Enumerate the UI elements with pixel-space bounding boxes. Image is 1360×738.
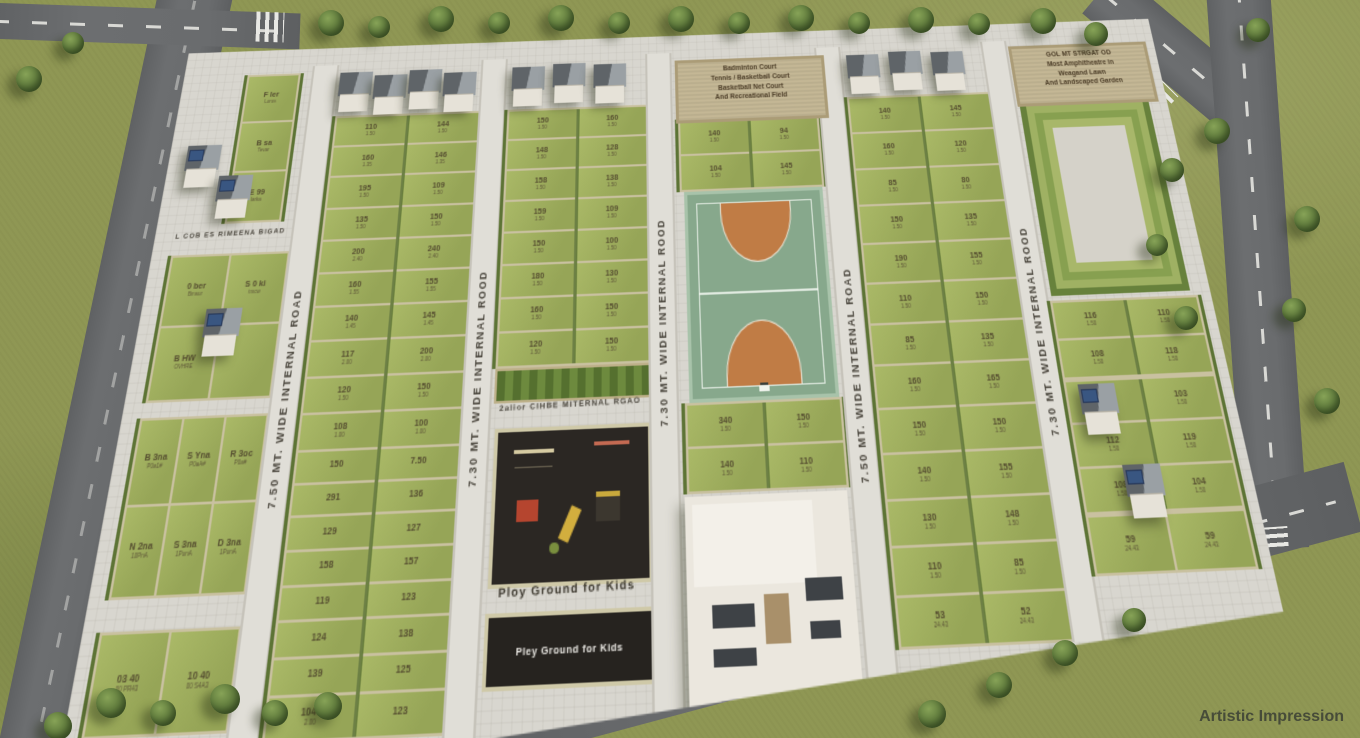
plot-area: 24.43 xyxy=(1205,542,1220,549)
plot: 1172.00 xyxy=(307,340,387,376)
plot: 1951.50 xyxy=(327,176,402,208)
plot: 1581.50 xyxy=(505,169,575,200)
plot-area: 1.50 xyxy=(536,186,546,191)
tree xyxy=(16,66,42,92)
plot-number: 340 xyxy=(718,416,732,425)
plot-area: 1.50 xyxy=(978,301,988,307)
tree xyxy=(1294,206,1320,232)
terraced-lawn xyxy=(1019,96,1190,296)
plot: 1401.50 xyxy=(883,452,967,499)
plot: 1601.55 xyxy=(315,272,393,306)
plot: 5324.43 xyxy=(897,595,986,647)
plot: 1101.50 xyxy=(334,116,407,146)
plot: 1461.35 xyxy=(404,143,477,174)
plot-area: 1.50 xyxy=(418,393,429,399)
plot: 139 xyxy=(270,657,359,696)
plot: 1501.50 xyxy=(508,109,576,139)
plot-number: S 3na xyxy=(173,540,197,551)
plot-area: 1.50 xyxy=(915,432,926,438)
plot-area: 1.50 xyxy=(608,123,617,128)
plot: 1401.50 xyxy=(688,446,767,492)
plot: 1501.50 xyxy=(765,399,843,443)
plot-area: 1.50 xyxy=(972,261,982,266)
plot: 1301.50 xyxy=(888,498,974,546)
plot: 5224.43 xyxy=(982,591,1072,643)
clubhouse-door xyxy=(764,593,792,644)
sports-court-sign: Badminton CourtTennis / Basketball Court… xyxy=(675,55,830,123)
plot-area: 1.50 xyxy=(983,342,994,348)
lawn-sign: GOL MT STRGAT ODMost Amphitheatre inWeag… xyxy=(1008,42,1159,107)
tree xyxy=(314,692,342,720)
tree xyxy=(262,700,288,726)
plot-area: 1.50 xyxy=(438,130,447,135)
plot: 123 xyxy=(355,690,445,737)
plot-number: 129 xyxy=(322,527,337,537)
house-wall xyxy=(183,168,216,188)
plot-area: 00 S4A3 xyxy=(186,683,209,691)
plot: 1081.50 xyxy=(1059,338,1138,377)
plot-number: 146 xyxy=(434,151,447,159)
plot: 1591.50 xyxy=(504,199,575,231)
plot: 1481.50 xyxy=(970,494,1057,542)
model-house xyxy=(212,175,253,219)
plot-number: 7.50 xyxy=(410,457,427,467)
plot: 1401.50 xyxy=(849,97,922,132)
road-label-outer-left: L COB ES RIMEENA BIGAD xyxy=(165,228,295,242)
plot-number: 123 xyxy=(392,707,408,719)
tree xyxy=(848,12,870,34)
plot: 851.50 xyxy=(976,542,1064,592)
plot-area: 1.50 xyxy=(722,471,733,477)
tree xyxy=(668,6,694,32)
plot: 1001.00 xyxy=(380,408,461,446)
model-house xyxy=(336,72,373,113)
house-wall xyxy=(373,96,404,115)
plot: 2402.40 xyxy=(396,236,472,269)
plot: 158 xyxy=(283,549,369,585)
plot-number: 110 xyxy=(799,457,813,467)
plot: 1501.50 xyxy=(574,328,648,364)
plot: 851.50 xyxy=(856,167,931,205)
tree xyxy=(96,688,126,718)
plot-area: 1.50 xyxy=(359,193,369,198)
model-house xyxy=(552,63,586,103)
plot-area: 1.50 xyxy=(881,116,891,121)
house-wall xyxy=(201,334,236,357)
plot-number: 200 xyxy=(419,347,433,356)
model-house xyxy=(406,69,442,110)
plot-number: 130 xyxy=(922,513,937,523)
plot-number: 135 xyxy=(355,216,368,224)
plot-area: 1.00 xyxy=(415,429,426,435)
plot: 941.50 xyxy=(749,116,819,151)
plot: 1161.50 xyxy=(1052,300,1130,338)
plot-number: 59 xyxy=(1205,531,1216,541)
plot-area: 1.50 xyxy=(710,138,719,143)
plot-area: 1.50 xyxy=(920,477,931,483)
plot-number: 148 xyxy=(1005,510,1020,520)
plot: 1651.50 xyxy=(953,361,1035,405)
plot-area: 1.50 xyxy=(365,132,375,137)
model-house xyxy=(846,54,882,94)
plot: 1101.50 xyxy=(867,282,946,323)
plot: 1501.50 xyxy=(503,231,575,264)
plot-area: 1.35 xyxy=(435,160,445,165)
plot-number: 150 xyxy=(417,382,431,391)
clubhouse-roof xyxy=(692,500,817,588)
plot: 291 xyxy=(291,482,375,516)
plot-number: 145 xyxy=(780,162,793,170)
plot-area: 1.50 xyxy=(537,155,546,160)
road-label-internal-2: 7.30 MT. WIDE INTERNAL ROOD xyxy=(466,270,489,487)
plot-area: OVHRE xyxy=(173,365,192,371)
plot: 1081.00 xyxy=(299,412,381,450)
plot: 7.50 xyxy=(377,446,459,479)
playground-panel: Pley Ground for Kids xyxy=(482,606,656,692)
plot: 1451.45 xyxy=(390,302,468,337)
plot-area: 1.50 xyxy=(1093,360,1104,366)
court-key-bottom xyxy=(724,318,803,386)
basketball-hoop xyxy=(759,385,770,392)
plot-area: 1.50 xyxy=(533,282,543,288)
tree xyxy=(1246,18,1270,42)
model-house xyxy=(441,72,477,113)
plot: 1501.50 xyxy=(575,294,648,329)
plot: 1101.50 xyxy=(892,546,979,596)
plot-area: 1.50 xyxy=(893,225,903,230)
plot-block-left-lower: B 3naP0a1#S YnaP0aA#R 3ocP0a#N 2na10PnAS… xyxy=(108,413,269,600)
tree xyxy=(1314,388,1340,414)
tree xyxy=(1084,22,1108,46)
clubhouse-window xyxy=(712,603,755,628)
plot-area: 2.00 xyxy=(342,360,353,366)
zebra-crossing xyxy=(255,12,284,43)
plot-area: 1.50 xyxy=(1109,446,1120,452)
tree xyxy=(1160,158,1184,182)
lawn-terrace-1 xyxy=(1019,96,1190,296)
tree xyxy=(728,12,750,34)
lawn-terrace-2 xyxy=(1026,102,1182,289)
tree xyxy=(608,12,630,34)
plot-area: 1.50 xyxy=(607,313,617,319)
plot: 1351.50 xyxy=(323,207,399,240)
plot-area: 2.00 xyxy=(304,720,316,728)
plot-number: 52 xyxy=(1020,607,1031,618)
plot: 851.50 xyxy=(871,322,951,365)
plot-area: Bmsur xyxy=(187,292,202,298)
plot-area: 1.50 xyxy=(889,188,899,193)
plot-area: 1.50 xyxy=(535,217,545,222)
house-wall xyxy=(935,72,966,90)
model-house xyxy=(930,51,968,91)
plot-number: 150 xyxy=(796,413,810,422)
plot: 2002.00 xyxy=(387,337,466,373)
plot-number: 85 xyxy=(905,336,915,345)
plot: 1101.50 xyxy=(767,443,847,488)
plot-area: 1.50 xyxy=(906,345,916,351)
kids-playground xyxy=(488,422,654,589)
tree xyxy=(368,16,390,38)
plot: 1181.50 xyxy=(1133,335,1213,374)
plot-area: 1.50 xyxy=(531,316,541,322)
plot-area: 1.50 xyxy=(910,388,921,394)
house-wall xyxy=(408,91,438,110)
plot-area: 1.55 xyxy=(349,291,359,297)
plot-area: 2.40 xyxy=(352,257,362,262)
house-roof xyxy=(1122,463,1166,497)
plot: 127 xyxy=(371,512,455,547)
plot-number: 85 xyxy=(888,179,897,187)
clubhouse-window xyxy=(805,576,844,601)
plot-number: 59 xyxy=(1125,535,1136,545)
plot: 1001.50 xyxy=(576,228,647,261)
plot: 1091.50 xyxy=(577,197,647,229)
house-wall xyxy=(1130,493,1168,519)
plot-area: 1.55 xyxy=(426,287,436,293)
site-plan-render: F lerLorusB saTevarE 99larka L COB ES RI… xyxy=(0,0,1360,738)
plot: 1201.50 xyxy=(303,375,384,412)
plot: 1501.50 xyxy=(879,407,962,452)
plot: 1601.50 xyxy=(852,131,926,168)
plot-number: D 3na xyxy=(217,538,242,549)
plot-area: 1.50 xyxy=(930,573,941,580)
plot-area: 1.50 xyxy=(607,246,617,251)
plot: 2002.40 xyxy=(319,239,396,272)
plot-area: 1.50 xyxy=(1001,474,1012,480)
plot-area: 1.50 xyxy=(1008,521,1019,528)
road-center-line xyxy=(0,19,294,32)
play-equipment-tower xyxy=(516,499,538,522)
plot-area: 1.50 xyxy=(606,347,616,353)
plot-number: 138 xyxy=(398,629,413,640)
plot-number: 110 xyxy=(1157,309,1171,318)
plot-area: 1.50 xyxy=(957,148,967,153)
plot-area: 1.50 xyxy=(431,222,441,227)
plot-number: 110 xyxy=(927,561,942,572)
plot-number: 10 40 xyxy=(187,671,211,683)
house-wall xyxy=(513,88,542,107)
tree xyxy=(1204,118,1230,144)
plot: 1601.35 xyxy=(331,145,405,176)
basketball-court xyxy=(684,187,839,403)
plot: 1381.50 xyxy=(577,166,646,197)
plot-area: 24.43 xyxy=(1020,619,1035,626)
plot-number: 104 xyxy=(1191,477,1207,487)
plot-area: 1.50 xyxy=(801,467,812,473)
plot-area: 1.50 xyxy=(1087,321,1098,327)
plot-number: 119 xyxy=(1182,433,1197,443)
tree xyxy=(62,32,84,54)
plot: F lerLorus xyxy=(243,75,299,122)
plot-area: 2.40 xyxy=(428,254,438,259)
plot-block-c-top: 1401.50941.501041.501451.50 xyxy=(678,114,824,192)
plot-area: 1.50 xyxy=(952,113,962,118)
plot-number: 108 xyxy=(1090,350,1105,359)
tree xyxy=(1122,608,1146,632)
plot-area: 1.50 xyxy=(607,153,616,158)
lawn-terrace-4 xyxy=(1043,117,1164,273)
plot-number: 125 xyxy=(395,665,411,676)
house-wall xyxy=(1085,411,1121,435)
plot-area: 1.50 xyxy=(1195,488,1207,494)
plot-area: Lorus xyxy=(264,100,276,105)
plot: 3401.50 xyxy=(687,403,764,447)
plot-number: 108 xyxy=(333,423,348,433)
plot-number: 123 xyxy=(401,592,416,603)
play-equipment-swing xyxy=(594,440,629,445)
tree xyxy=(1052,640,1078,666)
tree xyxy=(918,700,946,728)
plot-area: 1.50 xyxy=(885,151,895,156)
plot-number: 109 xyxy=(432,182,445,190)
plot-area: 1.45 xyxy=(423,322,433,328)
plot: 1501.50 xyxy=(859,204,935,243)
plot-number: 118 xyxy=(1164,347,1178,356)
plot: 1551.50 xyxy=(938,240,1016,280)
plot: 1901.50 xyxy=(863,242,940,282)
plot-area: 1.50 xyxy=(995,428,1006,434)
plot-number: 160 xyxy=(361,154,374,162)
house-wall xyxy=(595,85,624,104)
plot: 1501.50 xyxy=(958,404,1042,449)
plot-block-c-bottom: 3401.501501.501401.501101.50 xyxy=(685,397,849,495)
play-equipment-swing xyxy=(514,448,554,454)
clubhouse-building xyxy=(685,490,865,712)
plot-area: 1.50 xyxy=(897,264,907,269)
plot-number: 136 xyxy=(409,490,424,500)
tree xyxy=(44,712,72,738)
plot-number: 103 xyxy=(1173,390,1188,399)
plot-number: 158 xyxy=(318,561,333,572)
plot-column-b: 1501.501601.501481.501281.501581.501381.… xyxy=(495,105,650,369)
plot: 1481.50 xyxy=(507,139,576,170)
plot-number: 140 xyxy=(344,315,358,324)
tree xyxy=(908,7,934,33)
tree xyxy=(1174,306,1198,330)
house-wall xyxy=(443,93,473,112)
house-roof xyxy=(1077,383,1119,415)
plot-number: 94 xyxy=(780,127,789,134)
plot-area: 1.50 xyxy=(607,214,616,219)
plot: 1041.50 xyxy=(1158,463,1243,509)
plot: 1351.50 xyxy=(933,202,1010,241)
tree xyxy=(1030,8,1056,34)
tree xyxy=(986,672,1012,698)
plot: 1601.50 xyxy=(578,107,646,137)
plot-number: 157 xyxy=(403,557,418,568)
plot-number: B 3na xyxy=(144,453,168,463)
plot: 1091.50 xyxy=(401,173,475,205)
plot-area: 1.50 xyxy=(338,396,349,402)
plot-area: 1.50 xyxy=(989,385,1000,391)
plot-area: 1.50 xyxy=(1160,318,1171,324)
plot-number: 139 xyxy=(307,669,323,680)
plot: 1501.50 xyxy=(383,372,463,409)
plot: 1501.50 xyxy=(943,279,1022,320)
tree xyxy=(788,5,814,31)
plot-area: 1.50 xyxy=(799,423,810,429)
plot: 1201.50 xyxy=(498,331,573,367)
clubhouse-window xyxy=(713,648,757,668)
plot: 1441.50 xyxy=(407,113,479,143)
plot-area: 1.50 xyxy=(721,426,731,432)
plot-area: larka xyxy=(250,198,261,203)
site-layout: F lerLorusB saTevarE 99larka L COB ES RI… xyxy=(50,19,1315,738)
tree xyxy=(428,6,454,32)
plot-number: 120 xyxy=(337,386,351,395)
plot-area: 1.50 xyxy=(607,183,616,188)
house-wall xyxy=(214,198,247,218)
plot: 1281.50 xyxy=(578,136,647,167)
house-wall xyxy=(554,85,583,104)
plot: 136 xyxy=(374,478,457,512)
plot: 1451.50 xyxy=(751,151,822,187)
house-wall xyxy=(850,76,880,94)
plot-area: 1.50 xyxy=(901,304,911,310)
plot-area: P0a# xyxy=(234,460,247,466)
plot: 124 xyxy=(274,620,362,658)
plot: 1301.50 xyxy=(576,261,648,295)
plot-number: 291 xyxy=(326,493,341,503)
model-house xyxy=(371,74,408,115)
plot: 1501.50 xyxy=(398,204,473,237)
play-equipment-dome xyxy=(549,542,559,554)
plot: 1401.45 xyxy=(311,305,390,340)
play-equipment-slide xyxy=(558,505,582,543)
model-house xyxy=(511,66,545,106)
tree xyxy=(150,700,176,726)
plot: 1041.50 xyxy=(681,154,751,190)
plot: 1401.50 xyxy=(680,119,749,154)
plot: 5924.43 xyxy=(1167,511,1256,570)
plot: 1551.55 xyxy=(393,269,470,303)
plot-area: 24.43 xyxy=(934,623,949,630)
plot-number: N 2na xyxy=(128,542,153,553)
plot-number: 127 xyxy=(406,523,421,533)
plot-area: 1.50 xyxy=(433,190,443,195)
plot-area: P0a1# xyxy=(146,463,163,470)
plot-area: P0aA# xyxy=(189,462,206,469)
tree xyxy=(488,12,510,34)
plot-number: 53 xyxy=(935,611,946,622)
model-house xyxy=(181,145,222,188)
model-house xyxy=(593,63,626,103)
plot-area: 1.50 xyxy=(782,171,792,176)
plot-number: 140 xyxy=(720,460,734,470)
plot: 119 xyxy=(279,584,366,621)
plot-area: 1.50 xyxy=(1015,569,1027,576)
plot: 801.50 xyxy=(928,165,1004,203)
plot: 1201.50 xyxy=(924,129,999,165)
artistic-impression-watermark: Artistic Impression xyxy=(1199,708,1344,726)
plot: 1031.50 xyxy=(1141,376,1223,419)
tree xyxy=(1282,298,1306,322)
plot-area: Tevar xyxy=(257,148,269,153)
tree xyxy=(548,5,574,31)
plot-number: 112 xyxy=(1105,436,1120,446)
play-equipment-tower xyxy=(596,491,620,522)
plot-area: 1.50 xyxy=(607,279,617,285)
house-wall xyxy=(338,93,369,112)
plot-number: 119 xyxy=(315,596,330,607)
plot-number: 03 40 xyxy=(116,674,140,686)
plot-area: 1.50 xyxy=(534,249,544,254)
plot-number: R 3oc xyxy=(229,449,253,459)
plot-area: 1.50 xyxy=(967,222,977,227)
plot: 1801.50 xyxy=(501,263,574,297)
plot-area: tmcw xyxy=(248,290,260,296)
court-key-top xyxy=(719,201,794,263)
